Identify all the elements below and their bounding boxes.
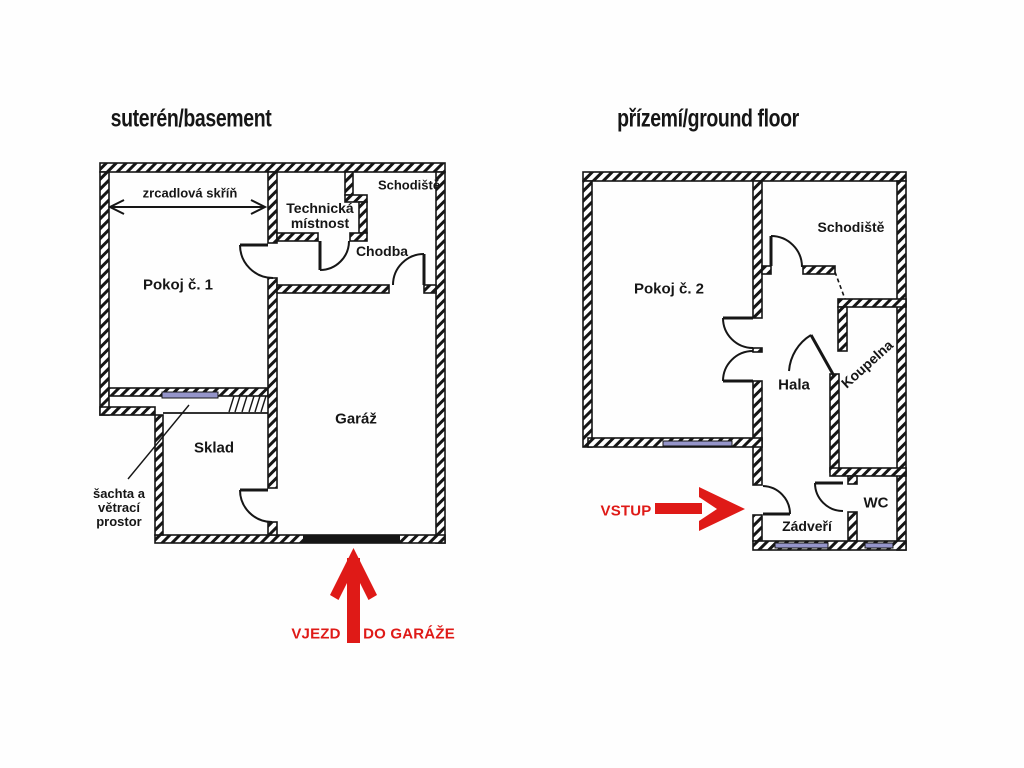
- window-icon: [162, 392, 218, 398]
- room-label-zadveri: Zádveří: [782, 518, 832, 534]
- room-label-sklad: Sklad: [194, 440, 234, 457]
- garage-door: [303, 535, 400, 543]
- door-arc-icon: [723, 351, 753, 381]
- garage-entry-label-left: VJEZD: [291, 626, 340, 643]
- ground-floor-title: přízemí/ground floor: [617, 105, 799, 134]
- door-arc-icon: [240, 245, 273, 278]
- room-label-hala: Hala: [778, 377, 810, 394]
- room-label-chodba: Chodba: [356, 243, 408, 259]
- main-entry-arrow-icon: [655, 487, 745, 531]
- window-icon: [775, 543, 828, 548]
- door-arc-icon: [771, 236, 802, 267]
- technicka-line1: Technická: [286, 201, 353, 216]
- wardrobe-label: zrcadlová skříň: [143, 186, 238, 201]
- door-arc-icon: [815, 483, 843, 511]
- door-arc-icon: [320, 241, 349, 270]
- room-label-garaz: Garáž: [335, 411, 377, 428]
- dimension-arrow-icon: [110, 200, 265, 214]
- window-icon: [865, 543, 893, 548]
- door-leaf: [811, 335, 834, 376]
- room-label-wc: WC: [864, 495, 889, 512]
- basement-plan: [100, 163, 445, 643]
- door-arc-icon: [240, 490, 272, 522]
- technicka-line2: místnost: [286, 216, 353, 231]
- door-arc-icon: [789, 335, 811, 371]
- basement-title: suterén/basement: [111, 105, 272, 134]
- room-label-technicka: Technická místnost: [286, 201, 353, 231]
- room-label-pokoj2: Pokoj č. 2: [634, 281, 704, 298]
- door-arc-icon: [763, 486, 790, 514]
- ground-floor-doors: [723, 236, 843, 514]
- garage-entry-label-right: DO GARÁŽE: [363, 626, 455, 643]
- shaft-line1: šachta a: [93, 487, 145, 501]
- shaft-line3: prostor: [93, 515, 145, 529]
- shaft-label: šachta a větrací prostor: [93, 487, 145, 529]
- room-label-schodiste-ground: Schodiště: [818, 219, 885, 235]
- room-label-pokoj1: Pokoj č. 1: [143, 277, 213, 294]
- basement-walls: [100, 163, 445, 543]
- stairs-icon: [229, 396, 266, 412]
- window-icon: [663, 441, 732, 446]
- shaft-line2: větrací: [93, 501, 145, 515]
- floor-plan-canvas: suterén/basement přízemí/ground floor zr…: [0, 0, 1024, 768]
- stair-dashed-line: [835, 272, 845, 299]
- door-arc-icon: [723, 318, 753, 348]
- room-label-schodiste-basement: Schodiště: [378, 178, 440, 193]
- main-entry-label: VSTUP: [600, 503, 651, 520]
